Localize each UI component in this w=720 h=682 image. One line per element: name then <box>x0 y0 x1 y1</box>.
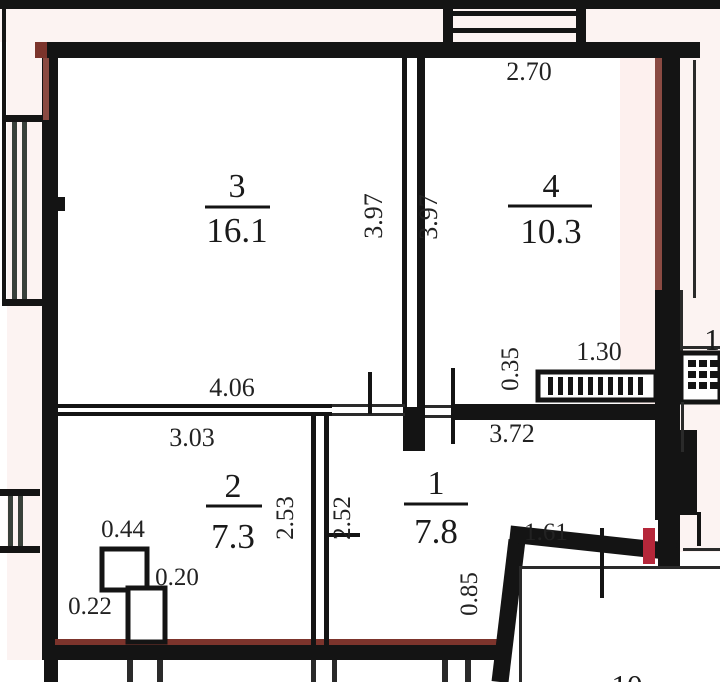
room1-label: 1 7.8 <box>404 465 468 551</box>
neighbor-wall-line-h <box>520 566 720 569</box>
dim-vent-width: 1.30 <box>576 337 622 366</box>
door-jamb <box>403 407 425 451</box>
neighbor-line <box>681 402 684 452</box>
neighbor-wall-line-h2 <box>683 548 720 551</box>
window-bar <box>447 11 582 16</box>
wall-stub <box>332 660 337 682</box>
wall-accent-red <box>643 528 655 564</box>
room1-number: 1 <box>428 465 445 502</box>
wall-stub <box>44 660 58 682</box>
dim-duct-top: 0.44 <box>101 516 145 543</box>
partition-line <box>311 416 316 645</box>
wall-stub <box>127 660 133 682</box>
wall-stub <box>157 660 163 682</box>
partition-line <box>58 412 332 416</box>
wall-room3-room2 <box>58 404 332 416</box>
dim-tick <box>697 512 701 546</box>
vent-hatch <box>598 377 603 395</box>
door-threshold <box>425 405 453 408</box>
floor-plan-canvas: 3 16.1 4 10.3 2 7.3 1 7.8 2.70 3.97 3.97… <box>0 0 720 682</box>
room2-label: 2 7.3 <box>206 468 262 556</box>
dim-hall-width: 3.72 <box>489 419 535 448</box>
top-slab-bar <box>0 0 720 9</box>
wall-stub <box>56 197 65 211</box>
wall-diagonal <box>500 540 517 682</box>
wall-accent-topleft <box>35 42 47 58</box>
vent-block-room4 <box>538 372 656 400</box>
shaft-cell <box>699 371 707 378</box>
duct-rect-room2 <box>128 588 165 642</box>
shaft-cell <box>710 360 718 367</box>
vent-hatch <box>578 377 583 395</box>
wall-top <box>35 42 700 58</box>
shaft-cell <box>710 382 718 389</box>
dim-vent-offset: 0.35 <box>497 347 524 391</box>
vent-hatch <box>548 377 553 395</box>
neighbor-room-bottom: 10 <box>612 668 643 682</box>
dim-tick <box>451 368 455 444</box>
window-tick <box>0 489 40 496</box>
window-tick <box>0 546 40 553</box>
room1-area: 7.8 <box>414 512 458 551</box>
window-pane-line <box>8 496 13 546</box>
vent-hatch <box>638 377 643 395</box>
wall-stub <box>442 660 448 682</box>
dim-room3-width: 4.06 <box>209 373 255 402</box>
neighbor-room-right: 1 <box>704 322 720 357</box>
dim-room2-width: 3.03 <box>169 423 215 452</box>
neighbor-line <box>693 60 696 298</box>
shaft-cell <box>710 371 718 378</box>
wall-bottom-accent <box>55 639 507 646</box>
wall-room1-room4 <box>453 404 655 420</box>
dim-diag-top: 1.61 <box>524 519 568 546</box>
outside-top-strip <box>0 9 720 42</box>
below-wall-stubs <box>44 660 471 682</box>
room4-area: 10.3 <box>520 212 581 251</box>
dim-room2-depth: 2.53 <box>272 496 299 540</box>
exterior-left-line <box>2 0 6 302</box>
wall-accent-right <box>655 58 662 290</box>
wall-room2-room1 <box>311 416 329 645</box>
dim-diag-side: 0.85 <box>456 572 483 616</box>
room3-number: 3 <box>229 168 246 205</box>
shaft-cell <box>688 371 696 378</box>
floor-plan: 3 16.1 4 10.3 2 7.3 1 7.8 2.70 3.97 3.97… <box>0 0 720 682</box>
room2-number: 2 <box>225 468 242 505</box>
vent-hatch <box>618 377 623 395</box>
vent-hatch <box>588 377 593 395</box>
vent-hatch <box>558 377 563 395</box>
wall-room3-room4 <box>402 58 425 451</box>
dim-room1-depth: 2.52 <box>329 496 356 540</box>
dim-wall34-left: 3.97 <box>359 193 388 239</box>
partition-line <box>58 404 332 408</box>
window-pane-line <box>22 122 27 299</box>
window-tick <box>2 299 42 306</box>
vent-hatch <box>628 377 633 395</box>
window-pane-line <box>18 496 23 546</box>
door-threshold <box>425 415 453 418</box>
window-post-right <box>576 5 586 42</box>
dim-duct-side: 0.20 <box>155 564 199 591</box>
dim-tick <box>368 372 372 414</box>
dim-top-room4: 2.70 <box>506 57 552 86</box>
dim-duct-left: 0.22 <box>68 593 112 620</box>
shaft-cell <box>688 382 696 389</box>
wall-right-thick <box>655 430 697 515</box>
window-tick <box>2 115 42 122</box>
window-bar <box>447 28 582 33</box>
window-post-left <box>443 5 453 42</box>
room4-number: 4 <box>543 168 560 205</box>
room4-label: 4 10.3 <box>508 168 592 251</box>
dim-tick <box>600 528 604 598</box>
wall-left <box>42 42 58 660</box>
room2-area: 7.3 <box>211 517 255 556</box>
dim-wall34-right: 3.97 <box>414 194 443 240</box>
room3-label: 3 16.1 <box>205 168 270 250</box>
wall-stub <box>311 660 316 682</box>
partition-line <box>402 58 407 407</box>
wall-bottom <box>42 645 507 660</box>
room3-area: 16.1 <box>206 211 267 250</box>
shaft-cell <box>699 360 707 367</box>
vent-hatch <box>608 377 613 395</box>
door-opening-room4 <box>425 405 453 418</box>
wall-stub <box>465 660 471 682</box>
shaft-cell <box>699 382 707 389</box>
shaft-cell <box>688 360 696 367</box>
duct-square-room2 <box>102 549 147 590</box>
vent-hatch <box>568 377 573 395</box>
window-pane-line <box>12 122 17 299</box>
room4-inner-tint <box>620 58 655 408</box>
neighbor-wall-line-v <box>519 566 522 682</box>
wall-accent-left <box>43 58 49 120</box>
